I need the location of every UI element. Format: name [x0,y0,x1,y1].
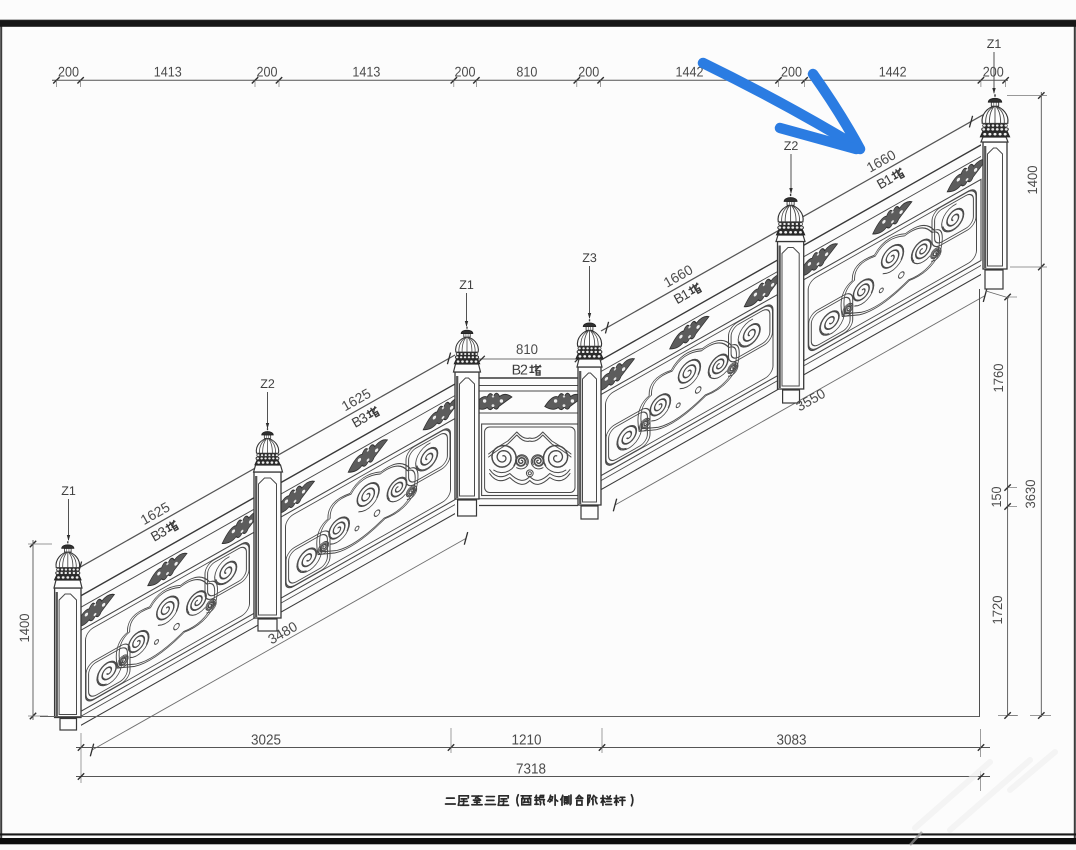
svg-text:1400: 1400 [17,614,32,643]
svg-text:200: 200 [257,64,278,80]
svg-text:1442: 1442 [879,64,907,80]
svg-text:Z2: Z2 [260,377,275,391]
svg-text:150: 150 [989,487,1004,508]
svg-text:200: 200 [781,64,802,80]
svg-text:7318: 7318 [516,762,546,778]
svg-text:2: 2 [520,363,528,379]
svg-text:200: 200 [455,64,476,80]
svg-text:Z1: Z1 [459,278,474,292]
svg-text:1210: 1210 [512,733,542,749]
svg-text:3025: 3025 [251,733,281,749]
svg-text:1720: 1720 [990,596,1005,625]
svg-text:3630: 3630 [1023,480,1038,509]
svg-text:Z1: Z1 [61,484,76,498]
svg-text:Z3: Z3 [582,251,597,265]
svg-text:200: 200 [578,64,599,80]
svg-text:1400: 1400 [1025,166,1040,195]
svg-text:200: 200 [58,64,79,80]
svg-text:810: 810 [516,64,537,80]
svg-text:1413: 1413 [352,64,380,80]
svg-text:3083: 3083 [777,733,807,749]
svg-text:1413: 1413 [154,64,182,80]
svg-text:Z2: Z2 [784,139,799,153]
svg-text:1760: 1760 [991,364,1006,393]
svg-text:200: 200 [983,64,1004,80]
svg-text:Z1: Z1 [987,37,1002,51]
svg-text:810: 810 [516,341,538,357]
